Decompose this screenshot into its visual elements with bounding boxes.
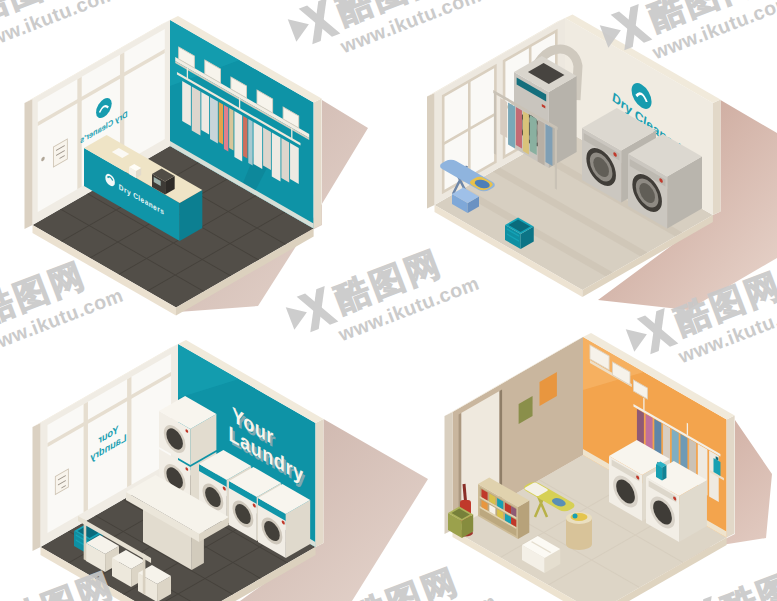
wall-edge (727, 416, 735, 538)
scene-dry-cleaners-shop: Dry Cleaner's (25, 16, 369, 316)
scene-home-laundry-room (445, 333, 773, 601)
laundry-hamper (566, 512, 592, 550)
scene-dry-cleaners-workroom: Dry Cleaner's (427, 15, 777, 311)
wall-edge (427, 93, 435, 209)
wall-edge (316, 419, 324, 547)
illustration: Dry Cleaner's (0, 0, 777, 601)
wall-edge (33, 423, 41, 551)
scene-your-laundry-laundromat: Your Laundry Your Your Laundry Laundry (33, 340, 429, 601)
wall-edge (25, 99, 33, 229)
wall-edge (314, 99, 322, 229)
stock-image-preview: Dry Cleaner's (0, 0, 777, 601)
wall-edge (713, 100, 721, 216)
